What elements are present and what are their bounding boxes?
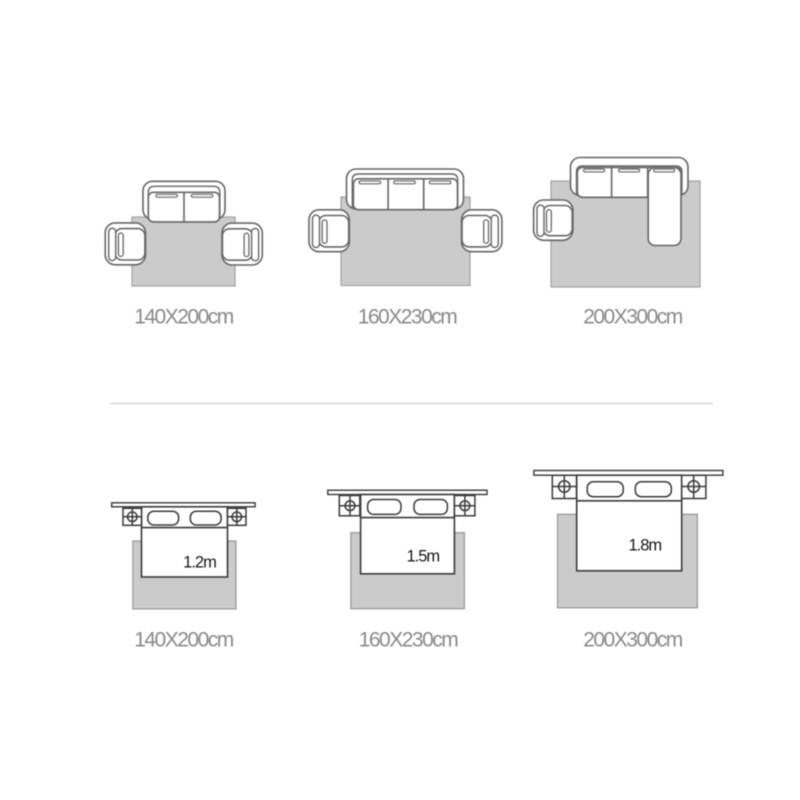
svg-text:140X200cm: 140X200cm [134,629,234,652]
svg-text:160X230cm: 160X230cm [358,306,458,329]
svg-text:200X300cm: 200X300cm [583,629,683,652]
svg-text:140X200cm: 140X200cm [134,306,234,329]
svg-text:1.8m: 1.8m [628,537,661,555]
svg-text:200X300cm: 200X300cm [583,306,683,329]
svg-text:1.5m: 1.5m [406,547,439,565]
svg-text:160X230cm: 160X230cm [359,629,459,652]
svg-text:1.2m: 1.2m [183,554,216,572]
